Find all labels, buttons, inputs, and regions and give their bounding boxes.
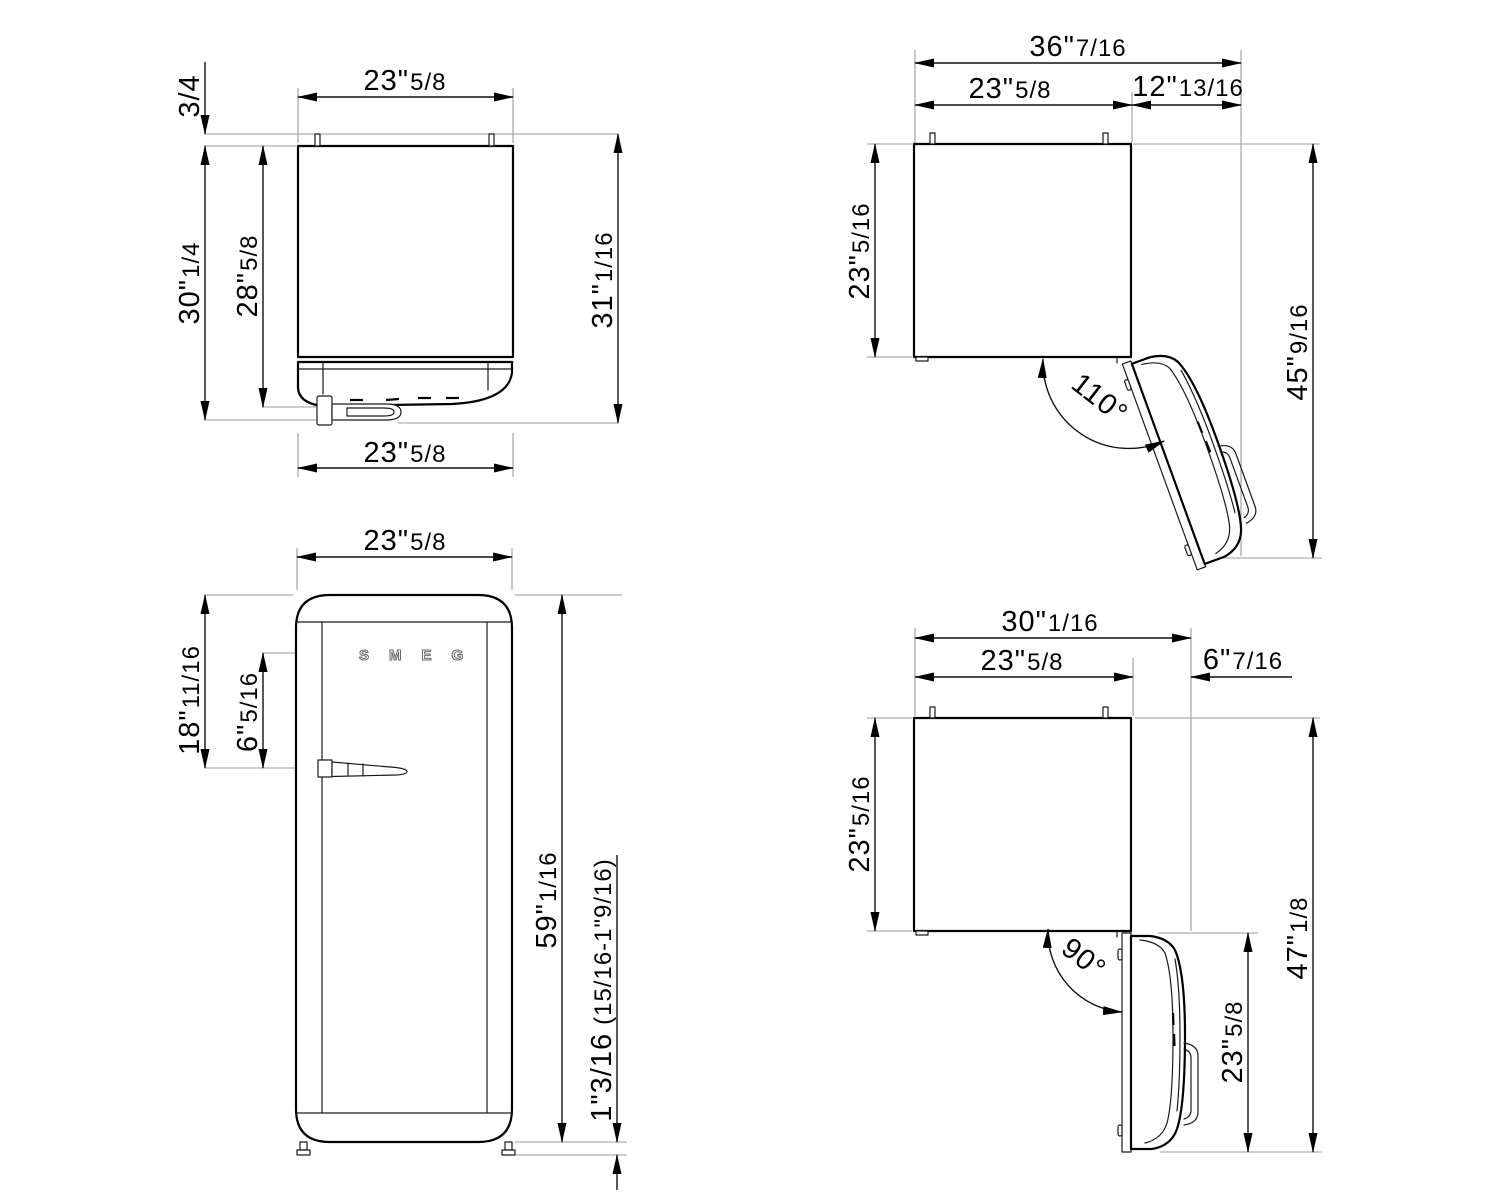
rear-spacer-pin bbox=[930, 133, 935, 144]
dim-value: 23" bbox=[981, 645, 1027, 677]
dim-body-depth: 23"5/16 bbox=[844, 775, 876, 872]
dim-body-width: 23"5/8 bbox=[981, 645, 1064, 677]
rear-spacer-pin bbox=[315, 134, 320, 146]
dim-total-depth: 30"1/16 bbox=[1001, 606, 1098, 638]
dim-open-depth: 47"1/8 bbox=[1282, 897, 1314, 980]
handle-mount bbox=[318, 760, 332, 777]
dim-fraction: 5/8 bbox=[410, 69, 446, 96]
dim-fraction: 9/16 bbox=[1286, 303, 1313, 354]
dim-door-length: 23"5/8 bbox=[1217, 1001, 1249, 1084]
dim-fraction: 5/16 bbox=[848, 202, 875, 253]
dim-fraction: 7/16 bbox=[1232, 648, 1283, 675]
dim-body-width: 23"5/8 bbox=[969, 73, 1052, 105]
dim-value: 1"3/16 bbox=[586, 1033, 618, 1122]
dim-value: 47" bbox=[1282, 934, 1314, 980]
dim-value: 23" bbox=[364, 65, 410, 97]
handle-mount bbox=[317, 396, 332, 425]
dim-top-to-handle: 18"11/16 bbox=[174, 645, 206, 755]
dim-value: 23" bbox=[364, 525, 410, 557]
dim-depth-body: 28"5/8 bbox=[232, 235, 264, 318]
cabinet-top-outline bbox=[914, 718, 1131, 931]
foot-mark bbox=[916, 931, 928, 935]
fridge-top-outline bbox=[914, 133, 1269, 571]
dim-fraction: 5/16 bbox=[848, 775, 875, 826]
rear-spacer-pin bbox=[1103, 707, 1108, 718]
leveling-foot-base bbox=[297, 1150, 310, 1155]
handle-bar bbox=[332, 404, 401, 420]
dim-fraction: 5/8 bbox=[236, 235, 263, 271]
dim-top-width: 23"5/8 bbox=[364, 65, 447, 97]
dim-fraction: 5/8 bbox=[1015, 77, 1051, 104]
dim-body-depth: 23"5/16 bbox=[844, 202, 876, 299]
dim-value: 6" bbox=[1203, 644, 1231, 676]
dim-depth-total: 30"1/4 bbox=[174, 242, 206, 325]
rear-spacer-pin bbox=[1103, 133, 1108, 144]
dim-value: 23" bbox=[844, 827, 876, 873]
dim-value: 30" bbox=[1001, 606, 1047, 638]
dim-fraction: 1/8 bbox=[1286, 897, 1313, 933]
door-angle-label: 90° bbox=[1055, 932, 1112, 986]
view-front-elevation: SMEG 23"5/8 18"11/16 6"5/16 59"1/16 1"3/… bbox=[174, 525, 627, 1190]
dim-depth-overall: 31"1/16 bbox=[587, 231, 619, 328]
dim-value: 23" bbox=[844, 254, 876, 300]
dim-fraction: 5/8 bbox=[1027, 649, 1063, 676]
dim-value: 6" bbox=[232, 724, 264, 752]
dim-fraction: 13/16 bbox=[1179, 75, 1244, 102]
dim-door-projection: 6"7/16 bbox=[1203, 644, 1283, 676]
dim-total-width: 36"7/16 bbox=[1029, 31, 1126, 63]
dim-fraction: 5/8 bbox=[410, 441, 446, 468]
dim-value: 36" bbox=[1029, 31, 1075, 63]
dim-open-depth: 45"9/16 bbox=[1282, 303, 1314, 400]
dim-value: 23" bbox=[364, 437, 410, 469]
fridge-top-outline bbox=[914, 707, 1198, 1152]
dim-value: 28" bbox=[232, 272, 264, 318]
dim-value: 30" bbox=[174, 279, 206, 325]
dim-fraction: 1/16 bbox=[535, 851, 562, 902]
rear-spacer-pin bbox=[930, 707, 935, 718]
dim-value: 3/4 bbox=[174, 74, 206, 117]
dim-fraction: 5/16 bbox=[236, 672, 263, 723]
dim-value: 18" bbox=[174, 709, 206, 755]
door-angle-label: 110° bbox=[1065, 367, 1133, 430]
view-plan-door-90: 30"1/16 23"5/8 6"7/16 23"5/16 23"5/8 47"… bbox=[844, 606, 1322, 1152]
dim-value: 23" bbox=[969, 73, 1015, 105]
dim-bottom-width: 23"5/8 bbox=[364, 437, 447, 469]
cabinet-top-outline bbox=[298, 146, 513, 357]
dim-fraction: (15/16-1"9/16) bbox=[590, 858, 617, 1025]
dim-value: 12" bbox=[1132, 71, 1178, 103]
dim-fraction: 7/16 bbox=[1076, 35, 1127, 62]
dim-fraction: 1/16 bbox=[1048, 610, 1099, 637]
view-plan-door-110: 36"7/16 23"5/8 12"13/16 23"5/16 45"9/16 … bbox=[844, 31, 1322, 571]
leveling-foot-base bbox=[502, 1150, 515, 1155]
leveling-foot bbox=[505, 1142, 512, 1150]
rear-spacer-pin bbox=[489, 134, 494, 146]
door-open-110 bbox=[1119, 338, 1269, 571]
fridge-top-outline bbox=[298, 134, 513, 425]
cabinet-top-outline bbox=[914, 144, 1131, 357]
dim-fraction: 1/16 bbox=[591, 231, 618, 282]
foot-mark bbox=[916, 357, 928, 361]
dim-height: 59"1/16 bbox=[531, 851, 563, 948]
dim-door-projection: 12"13/16 bbox=[1132, 71, 1244, 103]
dim-fraction: 5/8 bbox=[410, 529, 446, 556]
fridge-front-outline: SMEG bbox=[296, 595, 515, 1155]
dim-pin-height: 3/4 bbox=[174, 74, 206, 117]
cabinet-front-outline bbox=[296, 595, 512, 1142]
dim-value: 59" bbox=[531, 903, 563, 949]
leveling-foot bbox=[300, 1142, 307, 1150]
dim-feet-height: 1"3/16(15/16-1"9/16) bbox=[586, 858, 618, 1122]
dim-fraction: 5/8 bbox=[1221, 1001, 1248, 1037]
dim-logo-to-handle: 6"5/16 bbox=[232, 672, 264, 752]
dimension-drawing-page: 23"5/8 3/4 30"1/4 28"5/8 31"1/16 23"5/8 bbox=[0, 0, 1500, 1200]
dim-value: 23" bbox=[1217, 1038, 1249, 1084]
view-top-plan-closed: 23"5/8 3/4 30"1/4 28"5/8 31"1/16 23"5/8 bbox=[174, 62, 619, 477]
dim-fraction: 1/4 bbox=[178, 242, 205, 278]
dim-fraction: 11/16 bbox=[178, 645, 205, 708]
dim-value: 31" bbox=[587, 283, 619, 329]
smeg-logo: SMEG bbox=[359, 647, 483, 664]
refrigerator-dimension-drawing: 23"5/8 3/4 30"1/4 28"5/8 31"1/16 23"5/8 bbox=[0, 0, 1500, 1200]
door-open-90 bbox=[1118, 933, 1198, 1152]
dim-value: 45" bbox=[1282, 355, 1314, 401]
dim-width: 23"5/8 bbox=[364, 525, 447, 557]
